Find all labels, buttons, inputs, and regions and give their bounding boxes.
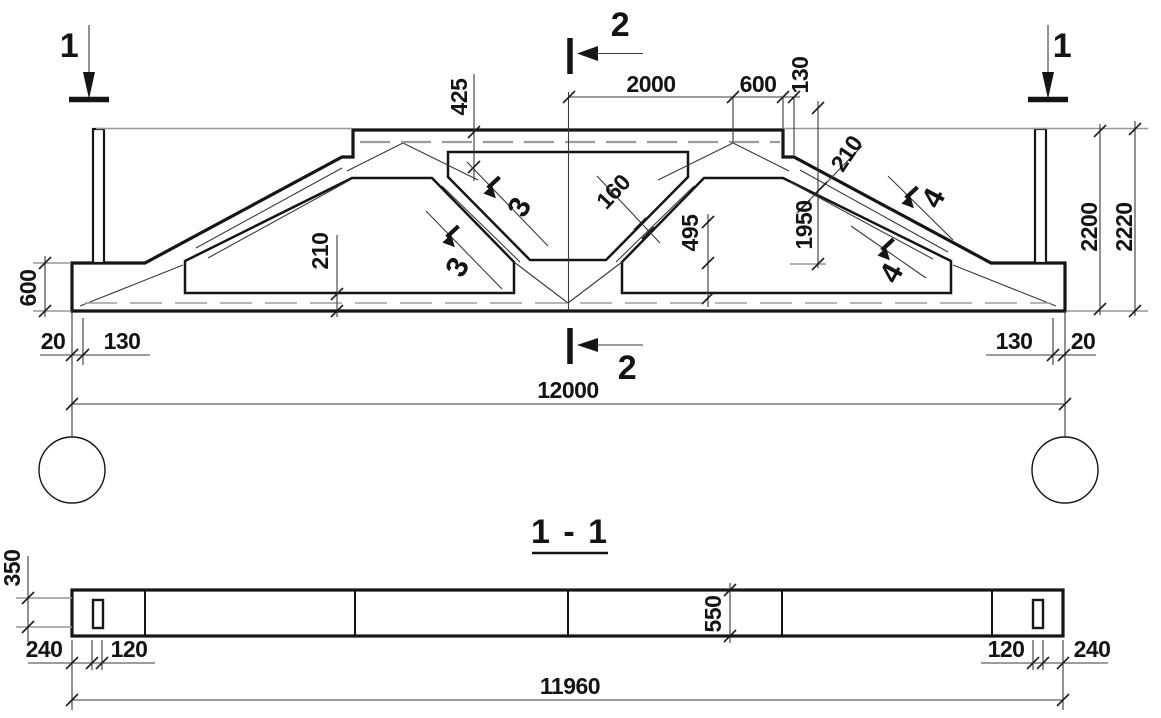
dim-2000: 2000: [626, 71, 675, 97]
dim-550: 550: [700, 596, 726, 633]
cut-label-3-upper: 3: [501, 193, 538, 223]
dim-11960: 11960: [540, 673, 600, 699]
section-marker-1-right: 1: [1028, 25, 1071, 100]
right-post: [1035, 129, 1046, 263]
dim-240-right: 240: [1074, 636, 1111, 662]
dim-120-left: 120: [111, 636, 148, 662]
dim-160: 160: [591, 169, 635, 214]
anchor-slot-left: [93, 600, 103, 628]
dim-600-left: 600: [15, 270, 41, 307]
anchor-slot-right: [1033, 600, 1043, 628]
section-1-1-view: 1 - 1: [0, 513, 1110, 710]
cut-mark-3-upper-icon: [483, 177, 509, 202]
dim-495: 495: [677, 214, 703, 252]
section-joint-lines: [145, 590, 992, 636]
dim-130-top: 130: [787, 57, 813, 94]
dim-20-left: 20: [41, 328, 66, 354]
section-dim-labels: 350 550 240 120 120 240 11960: [0, 550, 1110, 699]
cut-mark-3-lower-icon: [442, 226, 468, 251]
dim-600-top: 600: [740, 71, 777, 97]
dim-120-right: 120: [988, 636, 1025, 662]
dim-2220: 2220: [1111, 202, 1137, 251]
dimension-lines: [40, 74, 1135, 404]
elevation-view: 1 1 2 2 3: [15, 6, 1148, 503]
marker-1-right-label: 1: [1053, 27, 1071, 65]
grid-bubble-right: [1032, 437, 1098, 503]
dim-1950: 1950: [791, 200, 817, 249]
marker-2-bottom-label: 2: [618, 349, 636, 387]
dim-240-left: 240: [26, 636, 63, 662]
section-title: 1 - 1: [531, 513, 609, 551]
dim-210-right: 210: [825, 131, 867, 176]
elevation-dim-labels: 2000 600 130 425 160 495 1950 210 2200 2…: [15, 57, 1137, 403]
truss-drawing-canvas: 1 1 2 2 3: [0, 0, 1161, 718]
dim-425: 425: [446, 78, 472, 116]
section-marker-2-top: 2: [570, 6, 643, 74]
section-marker-1-left: 1: [60, 25, 109, 100]
grid-bubble-left: [39, 437, 105, 503]
left-post: [93, 129, 104, 263]
dim-20-right: 20: [1071, 328, 1096, 354]
dim-210-bottom: 210: [307, 233, 333, 270]
drawing-sheet: 1 1 2 2 3: [0, 0, 1161, 718]
marker-2-top-label: 2: [611, 6, 629, 44]
cut-label-4-lower: 4: [873, 258, 910, 289]
dim-12000: 12000: [537, 377, 598, 403]
marker-1-left-label: 1: [60, 27, 78, 65]
dim-130-right: 130: [996, 328, 1033, 354]
dim-2200: 2200: [1076, 202, 1102, 251]
dim-130-left: 130: [104, 328, 141, 354]
dim-350: 350: [0, 550, 25, 587]
